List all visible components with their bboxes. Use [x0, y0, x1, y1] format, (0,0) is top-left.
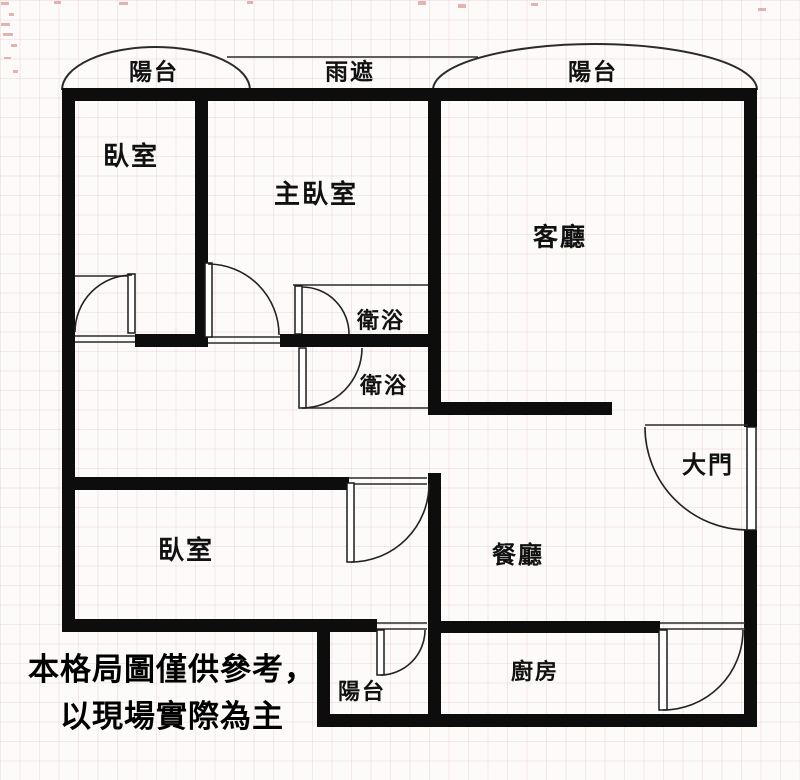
- wall-hall-top-right: [280, 334, 428, 347]
- disclaimer-line-2: 以現場實際為主: [22, 693, 322, 740]
- red-edge-ticks: [1, 1, 766, 73]
- master-door-leaf: [205, 263, 212, 337]
- label-bedroom-lower: 臥室: [158, 537, 214, 563]
- kitchen-door-leaf: [659, 630, 667, 710]
- label-main-door: 大門: [682, 454, 734, 478]
- wall-top: [62, 88, 757, 101]
- wall-hall-top-left: [135, 334, 208, 347]
- bedroom1-door-leaf: [128, 274, 135, 333]
- wall-right-lower: [744, 530, 757, 727]
- label-master-bedroom: 主臥室: [274, 181, 358, 207]
- label-bathroom-upper: 衛浴: [357, 310, 405, 332]
- kitchen-door-swing: [663, 630, 743, 710]
- wall-right-upper: [744, 88, 757, 427]
- label-balcony-top-right: 陽台: [568, 61, 618, 84]
- label-dining-room: 餐廳: [492, 544, 544, 568]
- label-balcony-top-left: 陽台: [129, 61, 179, 84]
- wall-bedroom2-top: [62, 477, 349, 490]
- bedroom2-door-leaf: [347, 483, 354, 562]
- master-door-swing: [208, 264, 279, 335]
- floor-plan: 陽台 雨遮 陽台 臥室 主臥室 客廳 衛浴 衛浴 臥室 餐廳 大門 陽台 廚房 …: [0, 0, 800, 780]
- label-living-room: 客廳: [533, 226, 587, 251]
- bathroom1-door-swing: [302, 287, 349, 334]
- label-balcony-bottom: 陽台: [338, 681, 386, 703]
- disclaimer-text: 本格局圖僅供參考， 以現場實際為主: [22, 646, 322, 740]
- main-door-leaf: [747, 427, 756, 530]
- bathroom1-door-leaf: [295, 286, 302, 334]
- wall-kitchen-top: [433, 621, 660, 633]
- label-bathroom-lower: 衛浴: [360, 375, 408, 397]
- disclaimer-line-1: 本格局圖僅供參考，: [22, 646, 322, 693]
- label-bedroom-upper: 臥室: [103, 143, 159, 169]
- balcony-door-leaf: [377, 630, 384, 675]
- balcony-door-swing: [380, 630, 425, 675]
- wall-left: [62, 88, 75, 632]
- bedroom1-door-swing: [75, 275, 132, 332]
- wall-bottom: [317, 714, 757, 727]
- wall-center-upper: [428, 88, 441, 415]
- bathroom2-door-leaf: [299, 348, 306, 408]
- wall-living-dining: [428, 402, 612, 415]
- label-kitchen: 廚房: [511, 661, 559, 683]
- bathroom2-door-swing: [302, 348, 362, 408]
- wall-center-lower: [428, 473, 441, 717]
- label-rain-shield: 雨遮: [325, 61, 375, 84]
- bedroom2-door-swing: [351, 484, 429, 562]
